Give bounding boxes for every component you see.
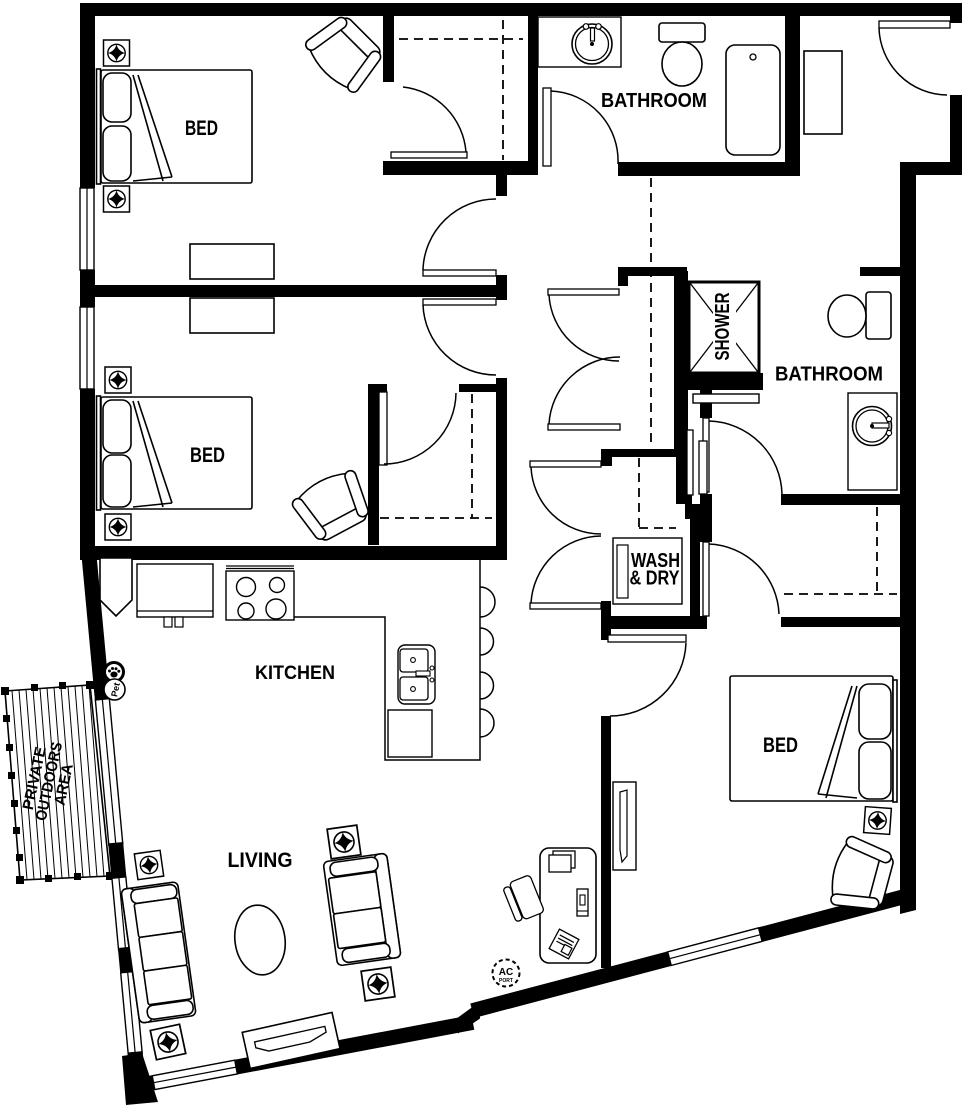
svg-text:& DRY: & DRY xyxy=(630,567,680,590)
svg-text:PORT: PORT xyxy=(499,978,513,984)
svg-text:BATHROOM: BATHROOM xyxy=(601,90,707,112)
svg-text:BED: BED xyxy=(185,116,218,140)
svg-text:SHOWER: SHOWER xyxy=(712,292,734,360)
svg-text:BED: BED xyxy=(763,733,798,757)
svg-text:KITCHEN: KITCHEN xyxy=(255,662,335,684)
svg-text:BATHROOM: BATHROOM xyxy=(775,364,883,386)
svg-text:AC: AC xyxy=(499,967,513,978)
svg-text:LIVING: LIVING xyxy=(228,849,293,872)
svg-text:BED: BED xyxy=(190,443,225,467)
